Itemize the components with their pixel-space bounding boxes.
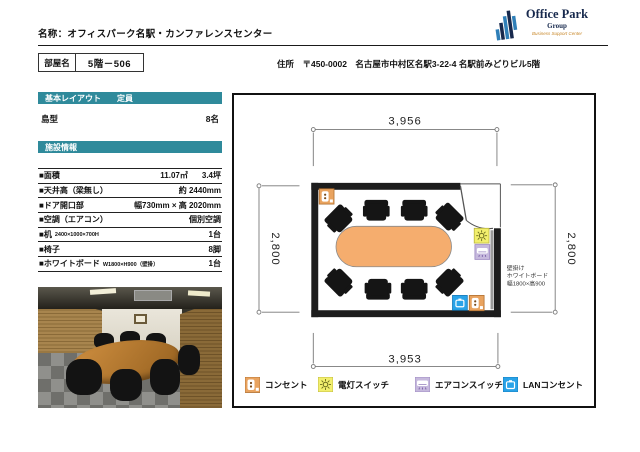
- basic-layout-title: 基本レイアウト: [45, 93, 101, 104]
- row-label: ■天井高（梁無し）: [39, 185, 108, 196]
- logo-bars-icon: [494, 8, 520, 42]
- meeting-table: [336, 226, 452, 266]
- dimension-bottom-value: 3,953: [388, 354, 421, 366]
- page-title: 名称：オフィスパーク名駅・カンファレンスセンター: [38, 26, 273, 40]
- whiteboard-marker: [491, 230, 494, 309]
- row-value: 1台: [209, 258, 221, 269]
- legend-lan: LANコンセント: [503, 377, 583, 392]
- row-label: ■椅子: [39, 244, 60, 255]
- row-sub-label: 2400×1000×700H: [55, 232, 99, 238]
- row-value: 3.4坪: [202, 170, 221, 181]
- basic-layout-header: 基本レイアウト 定員: [38, 92, 222, 104]
- address-text: 住所 〒450-0002 名古屋市中村区名駅3-22-4 名駅前みどりビル5階: [277, 58, 540, 70]
- layout-type: 島型: [41, 113, 58, 125]
- row-label: ■机: [39, 229, 52, 240]
- lan-outlet-icon: [503, 377, 518, 392]
- capacity-value: 8名: [206, 113, 219, 125]
- photo-chair: [66, 359, 102, 395]
- door-icon: [460, 184, 500, 229]
- capacity-header: 定員: [117, 93, 133, 104]
- dimension-lines-top: [313, 130, 497, 167]
- room-name-label: 部屋名: [39, 54, 76, 71]
- row-value: 幅730mm × 高 2020mm: [134, 200, 221, 211]
- photo-chair: [150, 359, 180, 395]
- facility-info-header: 施設情報: [38, 141, 222, 153]
- outlet-icon: [469, 295, 484, 310]
- table-row-desk: ■机 2400×1000×700H 1台: [38, 228, 222, 243]
- layout-type-row: 島型 8名: [38, 113, 222, 125]
- row-label: ■ドア開口部: [39, 200, 84, 211]
- row-label: ■空調（エアコン）: [39, 214, 108, 225]
- lan-outlet-icon: [453, 295, 468, 310]
- header-divider: [38, 45, 608, 46]
- dimension-right-value: 2,800: [565, 232, 577, 265]
- ac-switch-icon: [415, 377, 430, 392]
- row-label: ■ホワイトボード: [39, 258, 100, 269]
- photo-picture-frame: [134, 314, 147, 324]
- photo-chair: [178, 345, 200, 375]
- table-row-chairs: ■椅子 8脚: [38, 242, 222, 257]
- row-label: ■面積: [39, 170, 60, 181]
- table-row-door: ■ドア開口部 幅730mm × 高 2020mm: [38, 198, 222, 213]
- photo-ceiling-vent: [134, 290, 172, 301]
- logo-tagline: Business Support Center: [521, 31, 593, 36]
- table-row-aircon: ■空調（エアコン） 個別空調: [38, 213, 222, 228]
- row-sub-label: W1800×H900（壁掛）: [103, 260, 159, 268]
- facility-info-title: 施設情報: [45, 142, 77, 153]
- whiteboard-note-line1: 壁掛け: [507, 264, 525, 272]
- legend-ac-switch: エアコンスイッチ: [415, 377, 503, 392]
- photo-chair: [110, 369, 142, 401]
- legend-outlet: コンセント: [245, 377, 308, 393]
- ac-switch-icon: [475, 245, 490, 260]
- logo-text: Office Park Group Business Support Cente…: [521, 7, 593, 36]
- legend-ac-switch-label: エアコンスイッチ: [435, 379, 503, 391]
- table-row-whiteboard: ■ホワイトボード W1800×H900（壁掛） 1台: [38, 257, 222, 272]
- dimension-left-value: 2,800: [269, 232, 281, 265]
- room-name-box: 部屋名 5階－506: [38, 53, 144, 72]
- floor-plan-drawing: 3,956 3,953 2,800: [234, 95, 594, 406]
- row-value: 個別空調: [189, 214, 221, 225]
- dimension-lines-right: [511, 185, 555, 312]
- photo-light: [188, 290, 210, 296]
- outlet-icon: [245, 377, 260, 393]
- row-mid-value: 11.07㎡: [160, 170, 188, 181]
- whiteboard-note-line2: ホワイトボード: [507, 272, 548, 280]
- facility-table: ■面積 11.07㎡3.4坪 ■天井高（梁無し） 約 2440mm ■ドア開口部…: [38, 168, 222, 272]
- legend-light-switch-label: 電灯スイッチ: [338, 379, 389, 391]
- logo-name: Office Park: [521, 7, 593, 22]
- facility-sheet: 名称：オフィスパーク名駅・カンファレンスセンター Office Park Gro…: [0, 0, 640, 452]
- logo-subtitle: Group: [521, 22, 593, 30]
- light-switch-icon: [318, 377, 333, 392]
- table-row-ceiling: ■天井高（梁無し） 約 2440mm: [38, 184, 222, 199]
- floor-plan-box: 3,956 3,953 2,800: [232, 93, 596, 408]
- table-row-area: ■面積 11.07㎡3.4坪: [38, 169, 222, 184]
- light-switch-icon: [474, 228, 489, 243]
- room-photo: [38, 287, 222, 408]
- whiteboard-note-line3: 幅1800×高900: [507, 280, 546, 288]
- legend-outlet-label: コンセント: [265, 379, 308, 391]
- office-park-logo: Office Park Group Business Support Cente…: [494, 5, 594, 43]
- row-value: 8脚: [209, 244, 221, 255]
- dimension-top-value: 3,956: [388, 116, 421, 128]
- legend-lan-label: LANコンセント: [523, 379, 583, 391]
- room-name-value: 5階－506: [76, 54, 143, 71]
- outlet-icon: [319, 189, 334, 204]
- row-value: 約 2440mm: [179, 185, 221, 196]
- row-value: 1台: [209, 229, 221, 240]
- legend-light-switch: 電灯スイッチ: [318, 377, 389, 392]
